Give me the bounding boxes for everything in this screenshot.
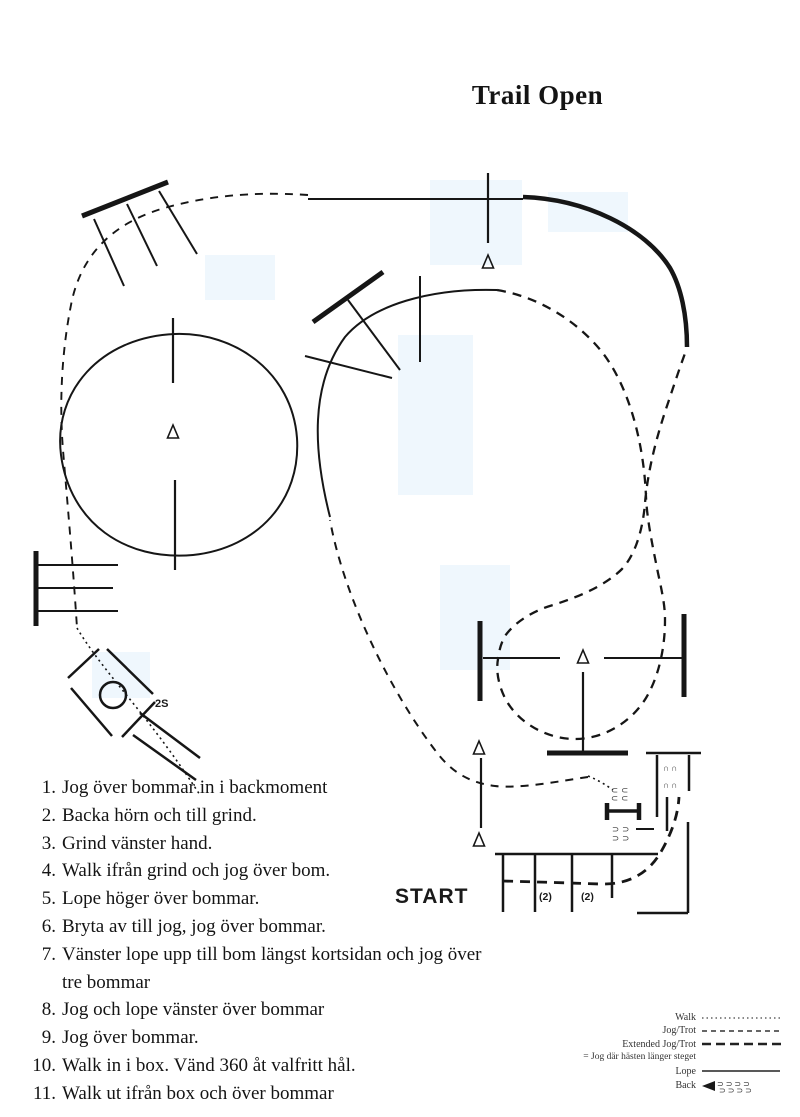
cone-marker [578, 650, 589, 663]
trail-pattern-page: Trail Open [0, 0, 800, 1117]
box-label: 2S [155, 698, 168, 710]
back-symbol: ⊃⊃⊃⊃ ⊃⊃⊃⊃ [701, 1079, 783, 1093]
gate: ⊂⊂ ⊂⊂ ⊃⊃ ⊃⊃ [605, 785, 641, 843]
obstacle-lope-square [480, 614, 686, 753]
list-item: 3.Grind vänster hand. [12, 830, 482, 858]
list-item: 8.Jog och lope vänster över bommar [12, 996, 482, 1024]
list-item: 9.Jog över bommar. [12, 1024, 482, 1052]
path-jog-obstacle-loop [497, 290, 687, 739]
list-item: 11.Walk ut ifrån box och över bommar [12, 1080, 482, 1108]
pole-spacing-label: (2) [539, 891, 552, 903]
back-arrow-icon [702, 1081, 715, 1091]
obstacle-three-pole-fan-top-left [82, 182, 197, 286]
cone-marker [168, 425, 179, 438]
extended-jog-line-sample [701, 1038, 783, 1050]
path-walk-gate [588, 776, 613, 790]
back-hoofprints: ⊃⊃⊃⊃ [719, 1086, 754, 1093]
cone-marker [474, 741, 485, 754]
jog-line-sample [701, 1025, 783, 1037]
list-item: 2.Backa hörn och till grind. [12, 802, 482, 830]
pole-spacing-label: (2) [581, 891, 594, 903]
list-item: 1.Jog över bommar in i backmoment [12, 774, 482, 802]
list-item-continuation: tre bommar [12, 969, 482, 997]
obstacle-left-three-poles [36, 551, 118, 626]
legend-row-walk: Walk [583, 1011, 783, 1024]
lope-circle [60, 318, 297, 570]
legend-row-extended-jog: Extended Jog/Trot [583, 1038, 783, 1051]
list-item: 6.Bryta av till jog, jog över bommar. [12, 913, 482, 941]
list-item: 10.Walk in i box. Vänd 360 åt valfritt h… [12, 1052, 482, 1080]
gait-legend: Walk Jog/Trot Extended Jog/Trot = Jog dä… [583, 1011, 783, 1094]
legend-row-lope: Lope [583, 1065, 783, 1078]
legend-row-back: Back ⊃⊃⊃⊃ ⊃⊃⊃⊃ [583, 1078, 783, 1094]
list-item: 4.Walk ifrån grind och jog över bom. [12, 857, 482, 885]
path-extended-jog-start [503, 797, 679, 884]
hoofprints-gate-lower: ⊃⊃ [612, 833, 632, 843]
lope-line-sample [701, 1065, 783, 1077]
walk-line-sample [701, 1012, 783, 1024]
scan-artifacts [92, 180, 628, 698]
hoofprints-chute: ∩∩ [663, 780, 679, 790]
legend-row-jog: Jog/Trot [583, 1024, 783, 1037]
list-item: 5.Lope höger över bommar. [12, 885, 482, 913]
hoofprints-gate-upper: ⊂⊂ [611, 793, 631, 803]
back-chute: ∩∩ ∩∩ [636, 753, 701, 913]
legend-note-spacer [701, 1052, 783, 1064]
hoofprints-chute: ∩∩ [663, 763, 679, 773]
instruction-list: 1.Jog över bommar in i backmoment 2.Back… [12, 774, 482, 1108]
list-item: 7.Vänster lope upp till bom längst korts… [12, 941, 482, 969]
legend-row-note: = Jog där hästen länger steget [583, 1051, 783, 1064]
